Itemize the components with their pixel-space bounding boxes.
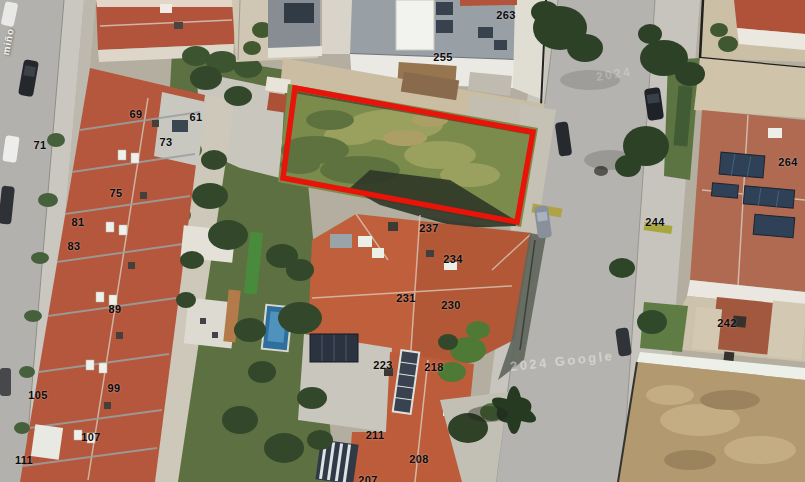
house-number-label: 83 <box>68 240 81 252</box>
house-number-label: 111 <box>15 454 33 466</box>
house-number-label: 61 <box>190 111 203 123</box>
house-number-label: 105 <box>28 389 47 401</box>
house-number-label: 218 <box>424 361 443 373</box>
house-number-label: 231 <box>396 292 415 304</box>
house-number-label: 99 <box>108 382 121 394</box>
house-number-label: 89 <box>109 303 122 315</box>
house-number-label: 75 <box>110 187 123 199</box>
house-number-label: 237 <box>419 222 438 234</box>
house-number-label: 244 <box>645 216 664 228</box>
map-overlay: miño 69617173758183899910510711125526323… <box>0 0 805 482</box>
house-number-label: 81 <box>72 216 85 228</box>
house-number-label: 73 <box>160 136 173 148</box>
house-number-label: 71 <box>34 139 47 151</box>
house-number-label: 107 <box>81 431 100 443</box>
house-number-label: 242 <box>717 317 736 329</box>
house-number-label: 255 <box>433 51 452 63</box>
house-number-label: 208 <box>409 453 428 465</box>
house-number-label: 264 <box>778 156 797 168</box>
house-number-label: 223 <box>373 359 392 371</box>
satellite-map-canvas[interactable]: miño 69617173758183899910510711125526323… <box>0 0 805 482</box>
house-number-label: 230 <box>441 299 460 311</box>
street-name-label: miño <box>0 11 19 72</box>
imagery-watermark: 2024 <box>595 64 633 84</box>
house-number-label: 69 <box>130 108 143 120</box>
house-number-label: 207 <box>358 474 377 482</box>
house-number-label: 211 <box>366 429 385 441</box>
house-number-label: 263 <box>496 9 515 21</box>
house-number-label: 234 <box>443 253 462 265</box>
imagery-watermark: 2024 Google <box>509 348 615 374</box>
